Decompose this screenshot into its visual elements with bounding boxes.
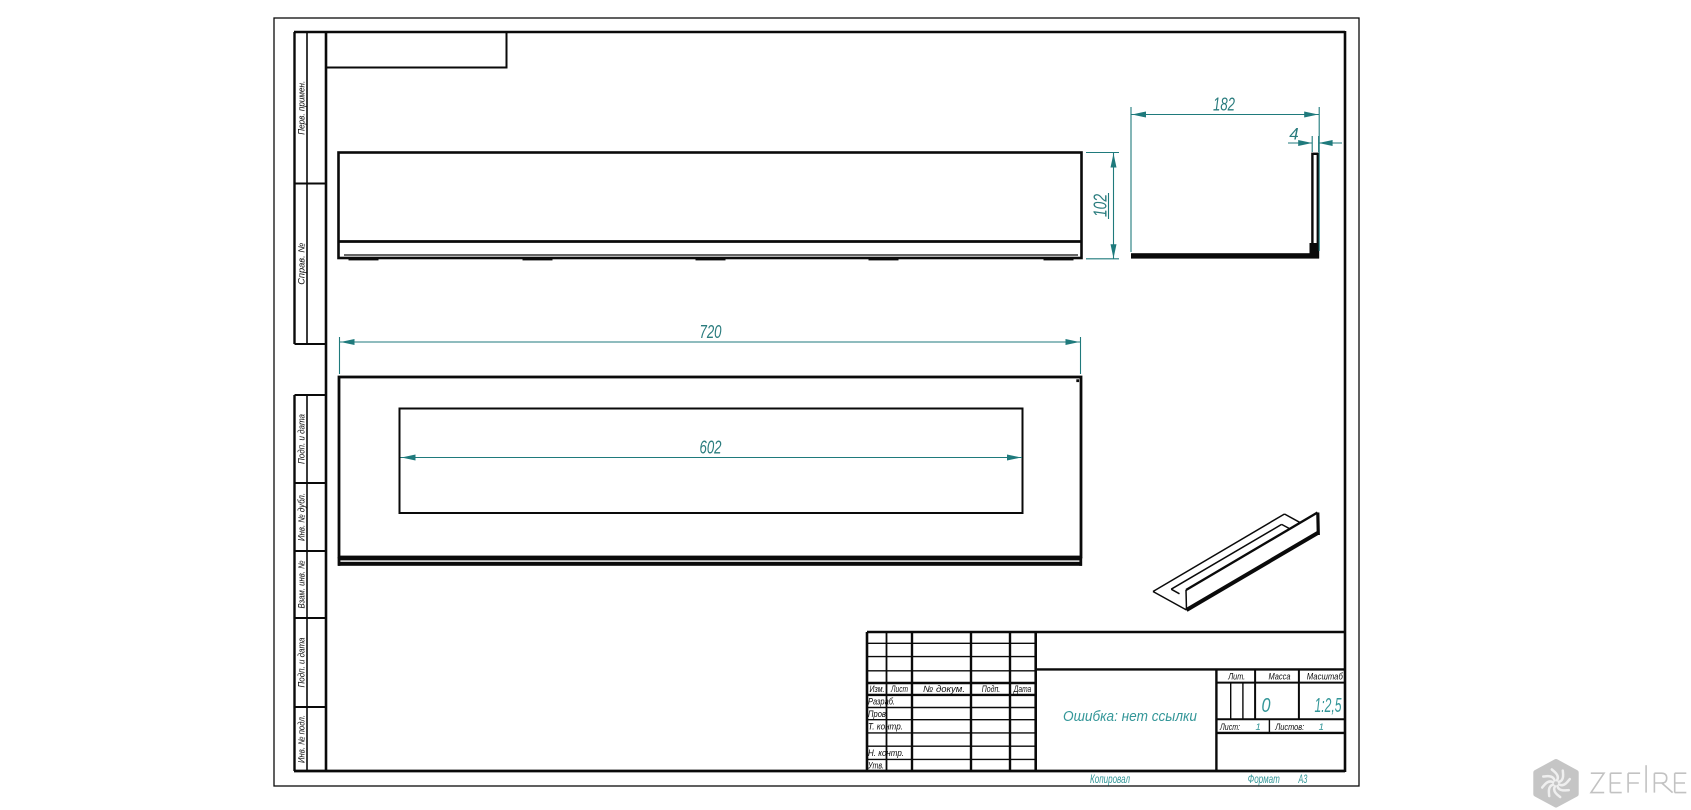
svg-text:Утв.: Утв. [867,761,884,771]
svg-text:Разраб.: Разраб. [868,697,895,707]
svg-text:Лист:: Лист: [1219,722,1240,732]
svg-text:Копировал: Копировал [1090,774,1130,786]
svg-text:Подп. и дата: Подп. и дата [297,638,307,688]
svg-text:Лит.: Лит. [1227,672,1245,682]
svg-text:Листов:: Листов: [1274,722,1304,732]
svg-text:182: 182 [1213,95,1235,115]
svg-text:Взам. инв. №: Взам. инв. № [297,560,307,608]
svg-text:0: 0 [1262,695,1271,717]
svg-text:602: 602 [700,438,722,458]
svg-text:А3: А3 [1298,774,1308,786]
svg-text:Масса: Масса [1269,672,1291,682]
svg-text:1: 1 [1319,722,1324,733]
svg-text:Изм.: Изм. [870,684,885,694]
svg-text:Перв. примен.: Перв. примен. [297,81,307,135]
svg-text:Подп.: Подп. [982,684,1001,694]
svg-text:Лист: Лист [890,684,908,694]
svg-text:Пров.: Пров. [868,709,888,719]
svg-text:1:2,5: 1:2,5 [1315,695,1343,717]
svg-text:Масштаб: Масштаб [1307,672,1344,682]
svg-text:Дата: Дата [1013,684,1031,694]
svg-text:4: 4 [1289,125,1298,144]
svg-text:Ошибка: нет ссылки: Ошибка: нет ссылки [1063,708,1198,725]
svg-text:Т. контр.: Т. контр. [868,722,903,732]
svg-text:1: 1 [1256,722,1261,733]
svg-text:Справ. №: Справ. № [297,243,307,285]
svg-text:102: 102 [1091,194,1111,217]
svg-text:Формат: Формат [1248,774,1280,786]
svg-text:Н. контр.: Н. контр. [868,748,904,758]
svg-text:Инв. № дубл.: Инв. № дубл. [297,493,307,541]
svg-text:720: 720 [700,322,722,342]
svg-text:Подп. и дата: Подп. и дата [297,414,307,464]
svg-text:Инв. № подл.: Инв. № подл. [297,715,307,763]
svg-text:№ докум.: № докум. [923,684,965,694]
